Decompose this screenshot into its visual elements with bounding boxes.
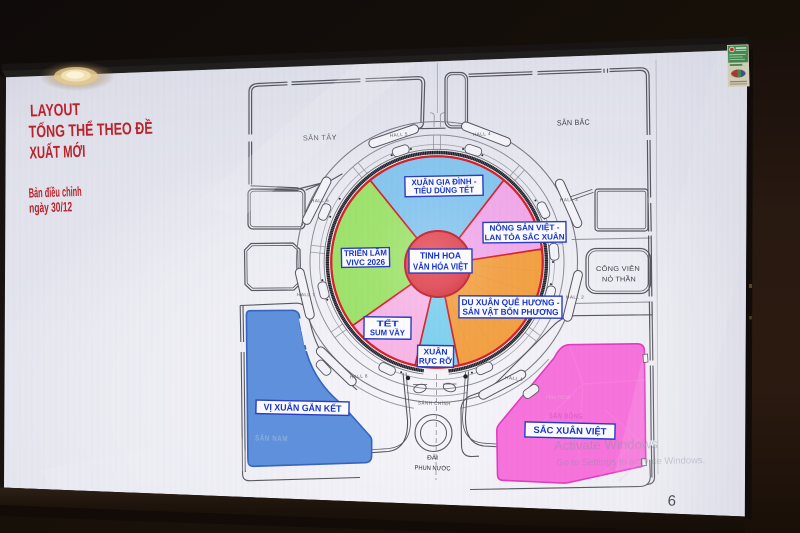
svg-text:ngày 30/12: ngày 30/12 bbox=[29, 199, 72, 215]
svg-text:RỰC RỠ: RỰC RỠ bbox=[419, 356, 452, 366]
svg-text:VỊ XUÂN GẮN KẾT: VỊ XUÂN GẮN KẾT bbox=[263, 401, 342, 414]
svg-text:HALL 3: HALL 3 bbox=[560, 197, 578, 203]
svg-text:SUM VẦY: SUM VẦY bbox=[370, 327, 406, 337]
svg-text:HALL 7: HALL 7 bbox=[297, 292, 315, 297]
svg-text:VĂN HÓA VIỆT: VĂN HÓA VIỆT bbox=[413, 261, 468, 272]
svg-text:SẢN VẬT BỐN PHƯƠNG: SẢN VẬT BỐN PHƯƠNG bbox=[462, 306, 558, 317]
svg-text:TINH HOA: TINH HOA bbox=[420, 251, 462, 261]
svg-text:LAN TỎA SẮC XUÂN: LAN TỎA SẮC XUÂN bbox=[485, 232, 565, 242]
svg-text:VIVC 2026: VIVC 2026 bbox=[346, 257, 385, 268]
svg-text:SÂN BẮC: SÂN BẮC bbox=[557, 118, 590, 128]
svg-text:XUẤT MỚI: XUẤT MỚI bbox=[29, 142, 86, 163]
svg-text:Hòa HCM: Hòa HCM bbox=[546, 395, 571, 402]
svg-text:LAYOUT: LAYOUT bbox=[30, 100, 81, 121]
svg-text:XUÂN: XUÂN bbox=[423, 345, 447, 356]
svg-text:CÔNG VIÊN: CÔNG VIÊN bbox=[596, 264, 640, 273]
svg-text:ĐÀI: ĐÀI bbox=[427, 455, 438, 462]
svg-text:HALL 2: HALL 2 bbox=[566, 295, 584, 300]
